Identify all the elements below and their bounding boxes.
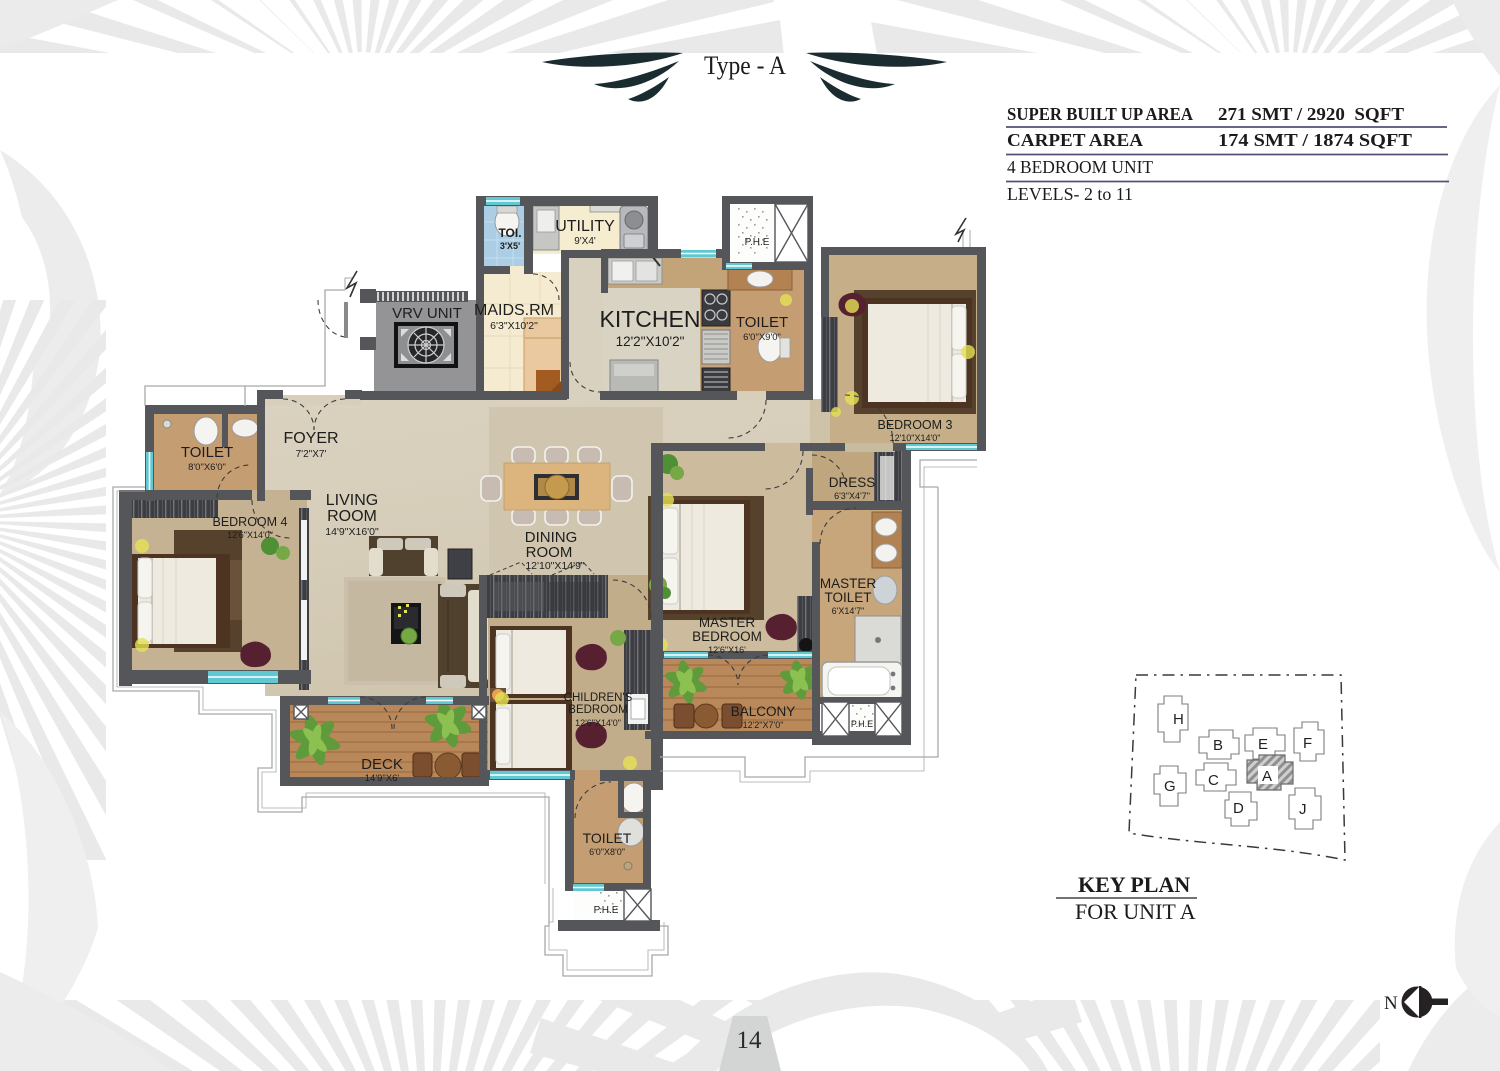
svg-text:12'6"X14'0": 12'6"X14'0" (575, 718, 621, 728)
svg-text:TOILET: TOILET (736, 314, 788, 331)
svg-text:7'2"X7': 7'2"X7' (296, 449, 327, 460)
svg-text:P.H.E: P.H.E (851, 719, 873, 729)
svg-text:6'X14'7": 6'X14'7" (832, 606, 865, 616)
svg-text:6'3"X4'7": 6'3"X4'7" (834, 491, 870, 501)
svg-text:BEDROOM: BEDROOM (568, 704, 627, 716)
svg-text:271 SMT / 2920 SQFT: 271 SMT / 2920 SQFT (1218, 104, 1404, 124)
svg-text:A: A (1262, 768, 1272, 785)
svg-text:FOR UNIT A: FOR UNIT A (1075, 899, 1196, 924)
svg-text:14'9"X16'0": 14'9"X16'0" (325, 526, 379, 538)
svg-text:8'0"X6'0": 8'0"X6'0" (188, 462, 226, 473)
svg-text:LEVELS- 2 to 11: LEVELS- 2 to 11 (1007, 184, 1133, 204)
svg-text:TOILET: TOILET (824, 590, 871, 605)
svg-text:UTILITY: UTILITY (555, 218, 615, 235)
svg-text:12'6"X16': 12'6"X16' (708, 645, 746, 655)
svg-text:4 BEDROOM UNIT: 4 BEDROOM UNIT (1007, 157, 1153, 177)
svg-text:BEDROOM 3: BEDROOM 3 (877, 418, 952, 432)
svg-text:CHILDREN'S: CHILDREN'S (564, 692, 633, 704)
svg-text:KEY PLAN: KEY PLAN (1078, 872, 1190, 897)
svg-text:P.H.E: P.H.E (745, 237, 770, 248)
svg-text:DRESS: DRESS (829, 475, 876, 490)
svg-text:LIVING: LIVING (326, 492, 378, 509)
svg-text:CARPET AREA: CARPET AREA (1007, 130, 1143, 150)
svg-text:9'X4': 9'X4' (574, 236, 596, 247)
svg-text:MAIDS.RM: MAIDS.RM (474, 302, 554, 319)
svg-text:12'6"X14'0": 12'6"X14'0" (227, 530, 273, 540)
svg-text:C: C (1208, 772, 1219, 789)
svg-text:TOI.: TOI. (498, 226, 521, 240)
svg-text:BEDROOM: BEDROOM (692, 629, 762, 644)
svg-text:BALCONY: BALCONY (731, 704, 796, 719)
svg-text:6'0"X9'0": 6'0"X9'0" (743, 332, 781, 343)
svg-text:14'9"X6': 14'9"X6' (365, 773, 400, 784)
svg-text:6'3"X10'2": 6'3"X10'2" (490, 320, 538, 332)
svg-text:TOILET: TOILET (583, 830, 632, 846)
svg-text:6'0"X8'0": 6'0"X8'0" (589, 847, 625, 857)
svg-text:H: H (1173, 711, 1184, 728)
svg-text:E: E (1258, 736, 1268, 753)
svg-text:D: D (1233, 800, 1244, 817)
svg-text:174 SMT / 1874 SQFT: 174 SMT / 1874 SQFT (1218, 130, 1412, 150)
svg-text:VRV UNIT: VRV UNIT (392, 305, 462, 322)
svg-text:TOILET: TOILET (181, 444, 233, 461)
svg-text:FOYER: FOYER (283, 430, 338, 447)
svg-text:MASTER: MASTER (820, 576, 877, 591)
svg-text:F: F (1303, 735, 1312, 752)
svg-text:DECK: DECK (361, 756, 403, 773)
svg-text:B: B (1213, 737, 1223, 754)
svg-text:KITCHEN: KITCHEN (600, 306, 701, 332)
svg-text:SUPER BUILT UP AREA: SUPER BUILT UP AREA (1007, 104, 1193, 124)
svg-text:ROOM: ROOM (327, 508, 377, 525)
svg-text:3'X5': 3'X5' (500, 241, 520, 251)
svg-text:12'2"X10'2": 12'2"X10'2" (616, 334, 685, 349)
svg-text:MASTER: MASTER (699, 615, 756, 630)
svg-text:J: J (1299, 801, 1307, 818)
svg-text:ROOM: ROOM (526, 544, 573, 561)
svg-text:12'2"X7'0": 12'2"X7'0" (743, 720, 784, 730)
svg-text:BEDROOM 4: BEDROOM 4 (212, 515, 287, 529)
svg-text:N: N (1384, 993, 1398, 1014)
svg-text:12'10"X14'0": 12'10"X14'0" (890, 433, 941, 443)
svg-text:G: G (1164, 778, 1176, 795)
svg-text:14: 14 (737, 1027, 763, 1054)
svg-text:12'10"X14'9": 12'10"X14'9" (525, 560, 585, 572)
svg-text:P.H.E: P.H.E (594, 905, 619, 916)
svg-text:Type - A: Type - A (704, 51, 786, 80)
